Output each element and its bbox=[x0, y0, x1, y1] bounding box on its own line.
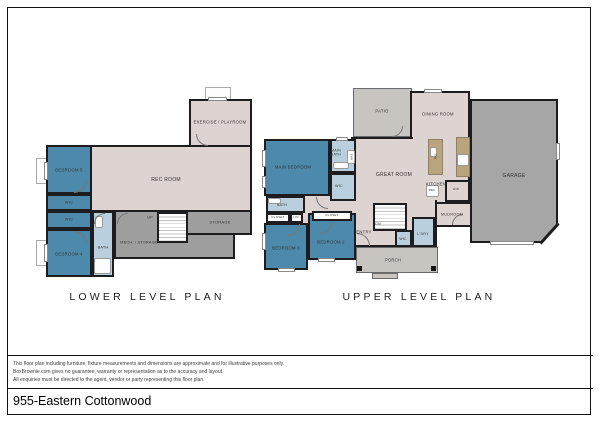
stove bbox=[457, 154, 469, 166]
bathtub bbox=[94, 258, 111, 274]
window-bedroom3-bottom bbox=[278, 268, 295, 272]
window-main-bedroom-1 bbox=[262, 150, 266, 167]
area-porch-step bbox=[372, 273, 398, 279]
label-laundry: L'DRY bbox=[417, 232, 428, 236]
label-linen: LIN bbox=[293, 216, 298, 220]
disclaimer-block: This floor plan including furniture, fix… bbox=[7, 355, 593, 388]
lower-plan-title: LOWER LEVEL PLAN bbox=[69, 291, 224, 303]
label-hall-bath: BATH bbox=[277, 203, 287, 207]
label-patio: PATIO bbox=[375, 108, 388, 113]
label-dn: DN bbox=[375, 222, 381, 226]
window-dining bbox=[424, 89, 442, 93]
disclaimer-line-2: BoxBrownie.com gives no guarantee, warra… bbox=[13, 368, 593, 376]
label-storage: STORAGE bbox=[209, 220, 230, 225]
label-dining: DINING ROOM bbox=[422, 111, 454, 116]
stairs-up bbox=[157, 212, 188, 243]
label-great-room: GREAT ROOM bbox=[376, 172, 412, 178]
window-exercise bbox=[208, 97, 227, 101]
porch-post-left bbox=[357, 266, 362, 271]
label-bath-lower: BATH bbox=[98, 246, 109, 251]
label-porch: PORCH bbox=[385, 257, 401, 262]
label-mech-storage: MECH. / STORAGE bbox=[120, 241, 158, 246]
label-bedroom2: BEDROOM 2 bbox=[317, 239, 344, 244]
window-bedroom4 bbox=[44, 244, 48, 262]
room-garage bbox=[470, 99, 558, 243]
label-bedroom5: BEDROOM 5 bbox=[55, 167, 82, 172]
disclaimer-line-1: This floor plan including furniture, fix… bbox=[13, 360, 593, 368]
label-bedroom3: BEDROOM 3 bbox=[272, 245, 299, 250]
window-main-bath bbox=[336, 137, 348, 141]
window-bedroom2-bottom bbox=[318, 258, 335, 262]
label-ref: REF bbox=[429, 189, 436, 193]
garage-door bbox=[490, 241, 534, 245]
footer-title-bar: 955-Eastern Cottonwood bbox=[7, 388, 593, 417]
label-wic-2: WIC bbox=[65, 218, 73, 223]
label-entry: ENTRY bbox=[356, 229, 371, 234]
label-closet-bedroom2: CLOSET bbox=[325, 214, 339, 218]
label-up: UP bbox=[147, 216, 153, 221]
label-mudroom: MUDROOM bbox=[441, 213, 463, 218]
plan-name: 955-Eastern Cottonwood bbox=[13, 394, 151, 408]
label-main-wic: WIC bbox=[335, 184, 343, 188]
disclaimer-line-3: All enquiries must be directed to the ag… bbox=[13, 376, 593, 384]
label-wic-entry: WIC bbox=[399, 237, 406, 241]
label-main-bedroom: MAIN BEDROOM bbox=[275, 164, 311, 169]
stairs-down bbox=[373, 203, 407, 231]
window-garage bbox=[556, 143, 560, 160]
label-bedroom4: BEDROOM 4 bbox=[55, 251, 82, 256]
label-dw: DW bbox=[433, 154, 436, 159]
label-kitchen: KITCHEN bbox=[426, 181, 446, 186]
label-shr: SHR bbox=[349, 154, 352, 161]
label-wip: WIP bbox=[453, 188, 459, 192]
label-main-bath: MAIN BATH bbox=[331, 149, 341, 158]
window-bedroom3-left bbox=[262, 233, 266, 250]
label-closet-bedroom3: CLOSET bbox=[271, 216, 285, 220]
label-garage: GARAGE bbox=[503, 173, 526, 179]
window-bedroom5 bbox=[44, 162, 48, 180]
label-rec-room: REC ROOM bbox=[151, 177, 181, 183]
label-exercise-playroom: EXERCISE / PLAYROOM bbox=[194, 119, 247, 124]
porch-post-right bbox=[431, 266, 436, 271]
window-main-bedroom-2 bbox=[262, 176, 266, 188]
floor-plan-page: EXERCISE / PLAYROOMREC ROOMBEDROOM 5WICW… bbox=[0, 0, 600, 424]
upper-plan-title: UPPER LEVEL PLAN bbox=[343, 291, 496, 303]
label-wic-1: WIC bbox=[65, 201, 73, 206]
